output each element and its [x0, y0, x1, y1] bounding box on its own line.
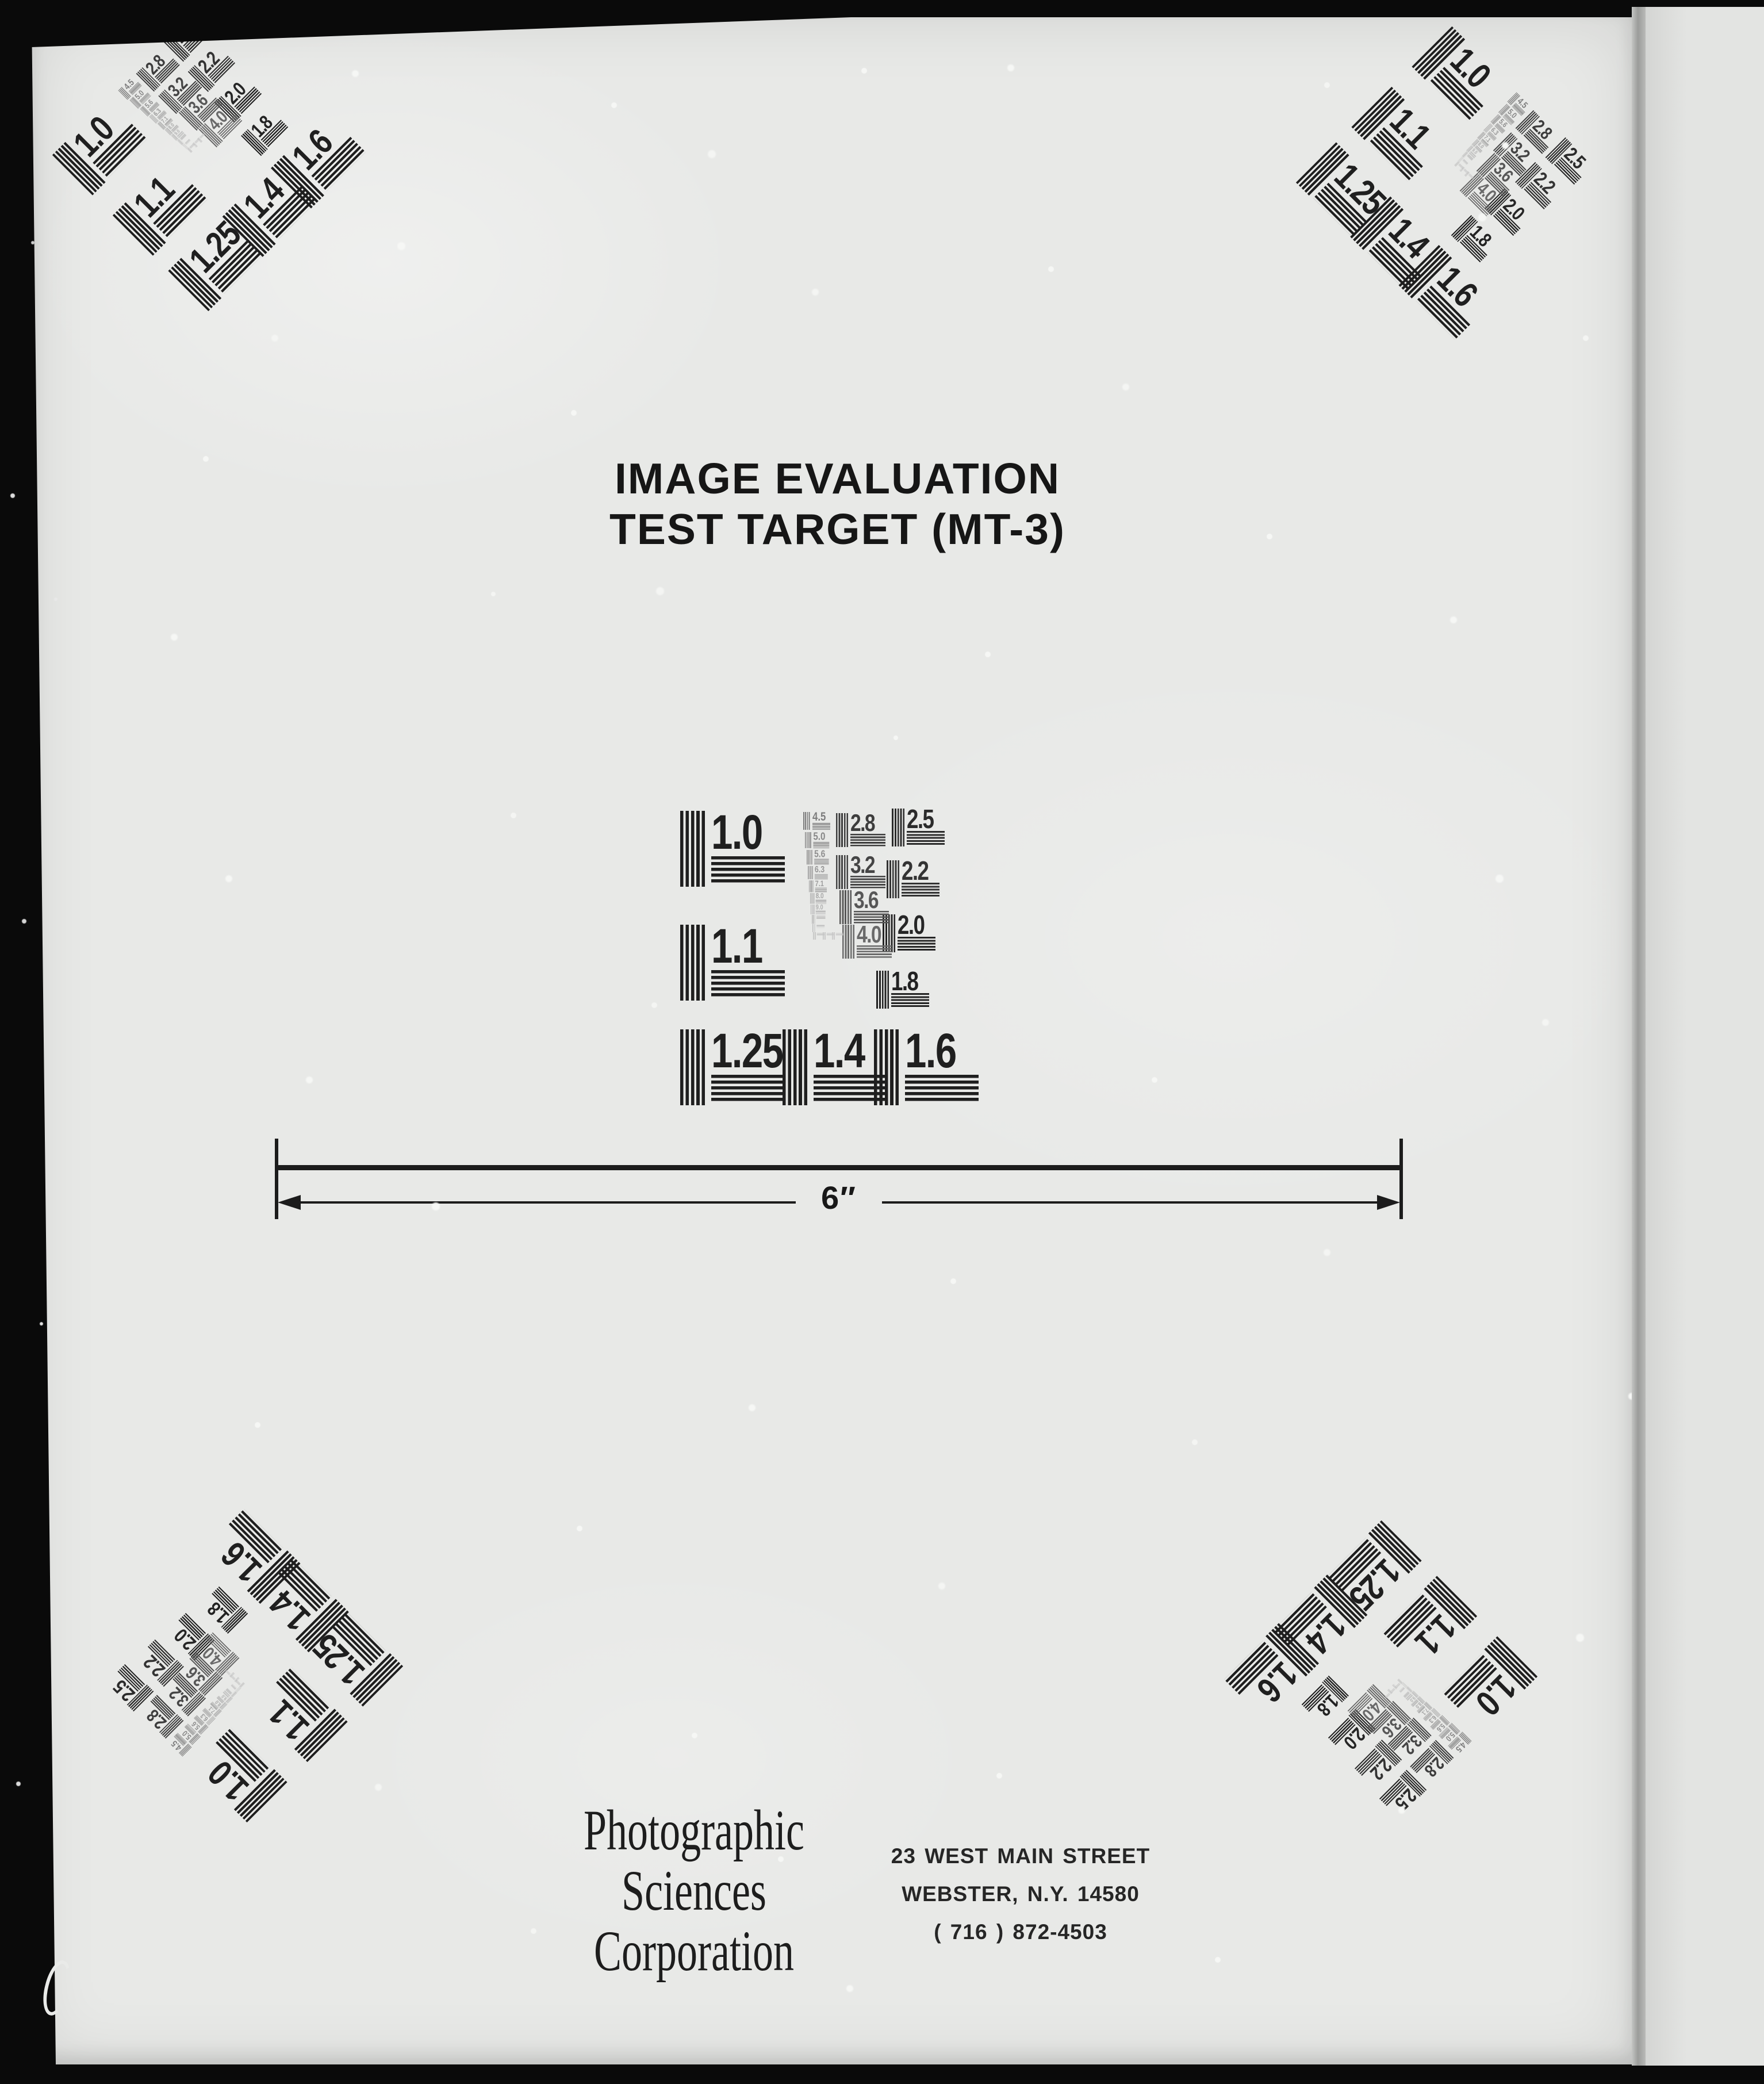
resolution-chart-unit-3.2: 3.2: [836, 855, 885, 889]
resolution-chart-unit-fine: [812, 915, 826, 924]
vertical-line-group: [876, 971, 889, 1009]
horizontal-line-group: [711, 970, 785, 999]
backing-dust-specks: [0, 0, 2, 2]
arrowhead-right-icon: [1377, 1195, 1400, 1210]
adjacent-page-edge: [1646, 7, 1764, 2066]
resolution-chart-unit-1.0: 1.0: [191, 1727, 287, 1823]
horizontal-line-group: [813, 842, 829, 848]
vertical-line-group: [812, 915, 816, 924]
vertical-line-group: [836, 855, 848, 889]
resolution-chart-unit-1.8: 1.8: [241, 108, 289, 156]
vertical-line-group: [812, 924, 816, 932]
resolution-target-bottom-left: 1.01.11.251.41.62.52.22.01.82.83.23.64.0…: [101, 1530, 400, 1829]
horizontal-line-group: [1385, 1693, 1391, 1699]
resolution-chart-unit-1.6: 1.6: [874, 1029, 979, 1105]
company-address: 23 WEST MAIN STREET WEBSTER, N.Y. 14580 …: [791, 1837, 1251, 1951]
vertical-line-group: [807, 850, 813, 864]
address-city: WEBSTER, N.Y. 14580: [791, 1875, 1251, 1913]
resolution-chart-unit-4.0: 4.0: [842, 925, 892, 959]
horizontal-line-group: [812, 823, 830, 830]
vertical-line-group: [680, 925, 707, 1001]
resolution-target-top-left: 1.01.11.251.41.62.52.22.01.82.83.23.64.0…: [46, 17, 345, 308]
scanned-microfilm-frame: 1.01.11.251.41.62.52.22.01.82.83.23.64.0…: [0, 0, 1764, 2084]
horizontal-line-group: [905, 1075, 979, 1104]
resolution-value: 7.1: [815, 880, 825, 887]
dimension-line: 6″: [275, 1194, 1403, 1211]
resolution-chart-unit-7.1: 7.1: [809, 880, 827, 892]
vertical-line-group: [680, 811, 707, 887]
address-phone: ( 716 ) 872-4503: [791, 1913, 1251, 1951]
resolution-value: 5.0: [813, 832, 826, 841]
resolution-chart-unit-1.8: 1.8: [1301, 1676, 1349, 1724]
vertical-line-group: [803, 812, 811, 830]
resolution-chart-unit-fine: [812, 924, 825, 932]
vertical-line-group: [680, 1029, 707, 1105]
resolution-value: 4.0: [857, 925, 885, 944]
resolution-chart-unit-4.5: 4.5: [803, 812, 830, 830]
resolution-chart-unit-2.2: 2.2: [887, 860, 939, 898]
horizontal-line-group: [225, 1670, 231, 1676]
title-line-2: TEST TARGET (MT-3): [43, 504, 1632, 554]
resolution-value: 3.6: [854, 890, 882, 909]
horizontal-line-group: [816, 915, 826, 919]
resolution-target-center: 1.01.11.251.41.62.52.22.01.82.83.23.64.0…: [680, 799, 945, 1098]
resolution-chart-unit-2.8: 2.8: [836, 813, 885, 847]
ruler-bar: [277, 1165, 1401, 1170]
resolution-chart-unit-1.0: 1.0: [52, 99, 148, 196]
vertical-line-group: [810, 893, 815, 904]
vertical-line-group: [874, 1029, 900, 1105]
resolution-target-top-right: 1.01.11.251.41.62.52.22.01.82.83.23.64.0…: [1299, 20, 1598, 319]
vertical-line-group: [842, 925, 854, 959]
resolution-value: 1.25: [711, 1029, 783, 1072]
resolution-chart-unit-1.8: 1.8: [1451, 215, 1500, 263]
vertical-line-group: [805, 832, 812, 848]
vertical-line-group: [836, 813, 848, 847]
test-target-page: 1.01.11.251.41.62.52.22.01.82.83.23.64.0…: [32, 17, 1632, 2064]
resolution-chart-unit-1.4: 1.4: [783, 1029, 887, 1105]
title-line-1: IMAGE EVALUATION: [43, 453, 1632, 504]
resolution-value: 3.2: [850, 855, 879, 874]
vertical-line-group: [811, 905, 815, 914]
horizontal-line-group: [711, 1075, 785, 1104]
resolution-chart-unit-1.8: 1.8: [876, 971, 929, 1009]
resolution-chart-unit-8.0: 8.0: [810, 893, 826, 904]
resolution-chart-unit-2.5: 2.5: [892, 809, 945, 846]
vertical-line-group: [783, 1029, 809, 1105]
resolution-value: 1.6: [905, 1029, 964, 1072]
resolution-value: 4.5: [812, 812, 827, 822]
horizontal-line-group: [816, 910, 826, 914]
vertical-line-group: [808, 866, 814, 879]
horizontal-line-group: [200, 133, 205, 139]
resolution-value: 2.8: [850, 813, 879, 832]
vertical-line-group: [839, 890, 852, 924]
ruler-length-label: 6″: [275, 1179, 1403, 1216]
vertical-line-group: [892, 809, 904, 846]
six-inch-ruler: 6″: [275, 1139, 1403, 1225]
resolution-chart-unit-3.6: 3.6: [839, 890, 889, 924]
page-seam: [1632, 7, 1646, 2066]
horizontal-line-group: [1468, 174, 1474, 179]
vertical-line-group: [823, 932, 826, 940]
address-street: 23 WEST MAIN STREET: [791, 1837, 1251, 1875]
resolution-value: 1.4: [814, 1029, 872, 1072]
resolution-value: 8.0: [816, 893, 825, 899]
resolution-value: 2.0: [898, 914, 928, 935]
resolution-target-bottom-right: 1.01.11.251.41.62.52.22.01.82.83.23.64.0…: [1245, 1524, 1544, 1823]
horizontal-line-group: [815, 874, 828, 879]
page-title: IMAGE EVALUATION TEST TARGET (MT-3): [43, 453, 1632, 554]
resolution-chart-unit-1.1: 1.1: [680, 925, 785, 1001]
horizontal-line-group: [814, 859, 829, 865]
resolution-value: 1.1: [711, 925, 770, 967]
resolution-value: 6.3: [815, 866, 825, 874]
resolution-chart-unit-1.8: 1.8: [200, 1585, 248, 1634]
vertical-line-group: [809, 880, 814, 892]
resolution-chart-unit-6.3: 6.3: [808, 866, 828, 879]
resolution-value: 9.0: [816, 905, 824, 910]
horizontal-line-group: [711, 856, 785, 885]
horizontal-line-group: [816, 925, 825, 928]
resolution-chart-unit-1.0: 1.0: [680, 811, 785, 887]
resolution-chart-unit-1.0: 1.0: [1442, 1636, 1538, 1732]
resolution-value: 1.0: [711, 811, 770, 853]
resolution-chart-unit-5.0: 5.0: [805, 832, 829, 848]
horizontal-line-group: [836, 933, 843, 936]
vertical-line-group: [832, 932, 835, 940]
resolution-chart-unit-fine: [832, 932, 843, 940]
resolution-chart-unit-1.0: 1.0: [1412, 26, 1508, 122]
resolution-value: 1.8: [891, 971, 922, 991]
resolution-value: 5.6: [814, 850, 826, 858]
vertical-line-group: [813, 932, 816, 940]
resolution-value: 2.2: [902, 860, 932, 881]
dimension-line-right-segment: [882, 1201, 1378, 1204]
resolution-value: 2.5: [907, 809, 937, 829]
resolution-chart-unit-9.0: 9.0: [811, 905, 826, 914]
scan-edge-left: [32, 17, 56, 2064]
resolution-chart-unit-5.6: 5.6: [807, 850, 829, 864]
